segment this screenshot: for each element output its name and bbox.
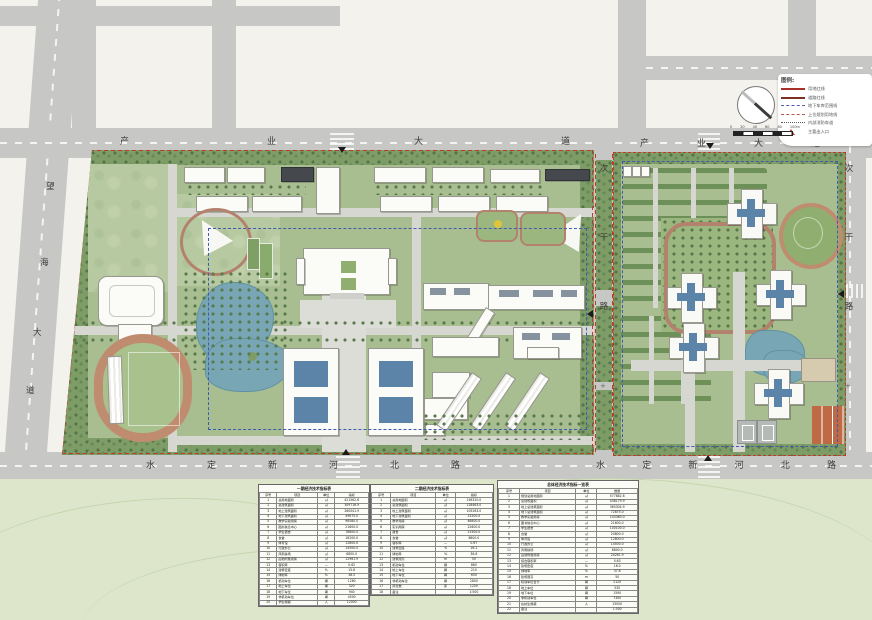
scale-bar-labels: 020406080100m bbox=[730, 125, 800, 129]
road-label-char: 北 bbox=[781, 458, 790, 471]
road-label-char: 道 bbox=[26, 384, 35, 396]
building bbox=[490, 169, 540, 183]
road-label-char: 水 bbox=[146, 458, 155, 471]
map-shape bbox=[341, 261, 356, 273]
map-shape bbox=[793, 217, 823, 249]
table-cell: 备注 bbox=[520, 607, 576, 612]
road-label-char: 路 bbox=[600, 300, 609, 312]
road-label-char: 海 bbox=[40, 256, 49, 268]
table-cell: 12000 bbox=[335, 600, 369, 605]
sports-court bbox=[757, 420, 777, 444]
map-shape bbox=[774, 379, 782, 407]
legend-label: 道路红线 bbox=[808, 95, 825, 101]
compass-needle bbox=[741, 91, 772, 120]
basketball-courts bbox=[812, 406, 844, 444]
road-label-char: 产 bbox=[640, 136, 649, 149]
road-label-char: 大 bbox=[754, 136, 763, 149]
cross-building bbox=[754, 369, 802, 417]
legend-item: 用地红线 bbox=[781, 85, 869, 94]
main-building bbox=[303, 248, 390, 295]
city-road-vertical-4 bbox=[788, 0, 816, 56]
map-shape bbox=[522, 333, 540, 340]
map-shape: 序号项目单位数量1规划总用地面积㎡577882.62总建筑面积㎡438179.9… bbox=[498, 488, 638, 613]
road-label-char: 80 bbox=[777, 125, 781, 129]
road-label-char: 水 bbox=[596, 458, 605, 471]
map-shape: 序号项目单位数量1规划总用地面积㎡577882.62总建筑面积㎡438179.9… bbox=[499, 489, 638, 613]
map-shape bbox=[62, 453, 594, 454]
map-shape bbox=[613, 152, 846, 164]
table-cell: 1:500 bbox=[597, 607, 638, 612]
map-shape bbox=[781, 88, 805, 90]
map-shape bbox=[552, 333, 570, 340]
main-entrance-marker bbox=[342, 449, 350, 455]
map-shape bbox=[499, 290, 519, 297]
map-shape bbox=[781, 114, 805, 115]
road-label-char: 产 bbox=[120, 134, 129, 147]
table-cell: 18 bbox=[372, 590, 391, 595]
map-shape: 序号项目单位指标1总用地面积㎡421562.62总建筑面积㎡309716.93地… bbox=[259, 492, 369, 606]
road-label-char: 0 bbox=[730, 125, 732, 129]
road-label-char: 河 bbox=[329, 458, 338, 471]
shed bbox=[623, 166, 632, 177]
map-shape bbox=[687, 283, 695, 311]
city-road-vertical-2 bbox=[212, 0, 236, 128]
indicator-table-total: 总体经济技术指标一览表序号项目单位数量1规划总用地面积㎡577882.62总建筑… bbox=[497, 480, 639, 614]
legend-label: 上位规划用地线 bbox=[808, 112, 837, 118]
building bbox=[227, 167, 265, 183]
road-label-middle-secondary: 次干路 bbox=[597, 162, 611, 312]
road-label-char: 新 bbox=[268, 458, 277, 471]
map-shape bbox=[379, 361, 413, 387]
road-label-east-secondary: 次干路 bbox=[842, 162, 856, 312]
map-shape bbox=[613, 152, 621, 456]
stadium bbox=[94, 334, 192, 442]
road-label-char: 路 bbox=[827, 458, 836, 471]
side-entrance-marker bbox=[838, 290, 844, 298]
cross-building bbox=[669, 323, 717, 371]
map-shape bbox=[747, 199, 755, 227]
table-cell: 人 bbox=[318, 600, 335, 605]
shed bbox=[641, 166, 650, 177]
road-label-char: 60 bbox=[765, 125, 769, 129]
road-label-char: 20 bbox=[740, 125, 744, 129]
building bbox=[380, 196, 432, 212]
table-cell: 学生规模 bbox=[277, 600, 318, 605]
legend-sample-solid bbox=[781, 94, 805, 102]
table-cell: 1:500 bbox=[455, 590, 492, 595]
cross-building bbox=[667, 273, 715, 321]
map-shape bbox=[186, 183, 306, 195]
map-shape bbox=[88, 164, 168, 292]
road-label-char: 大 bbox=[414, 134, 423, 147]
service-building bbox=[801, 358, 836, 382]
map-shape bbox=[430, 288, 446, 295]
lab-building bbox=[488, 285, 585, 310]
map-shape bbox=[776, 280, 784, 308]
indicator-table-phase1: 一期经济技术指标表序号项目单位指标1总用地面积㎡421562.62总建筑面积㎡3… bbox=[258, 484, 370, 607]
map-shape bbox=[182, 270, 292, 370]
road-label-char: 道 bbox=[561, 134, 570, 147]
road-label-shuiding-west: 水定新河北路 bbox=[146, 458, 460, 471]
dormitory-court-building bbox=[283, 348, 339, 436]
road-label-char: 大 bbox=[33, 326, 42, 338]
table-title: 一期经济技术指标表 bbox=[259, 485, 369, 492]
road-label-char: 业 bbox=[697, 136, 706, 149]
road-label-char: 望 bbox=[46, 180, 55, 192]
lab-building bbox=[423, 283, 489, 310]
survey-cross: + bbox=[600, 382, 606, 390]
garden bbox=[520, 212, 566, 246]
map-shape bbox=[294, 397, 328, 423]
dormitory-court-building bbox=[368, 348, 424, 436]
map-shape bbox=[561, 290, 577, 297]
building bbox=[184, 167, 225, 183]
campus-master-plan-map: 产业大道 产业大道 水定新河北路 水定新河北路 望海大道 次干路 + 次干路 +… bbox=[0, 0, 872, 620]
building-dark-roof bbox=[281, 167, 314, 182]
building-dark-roof bbox=[545, 169, 590, 181]
north-compass bbox=[737, 86, 775, 124]
sculpture-dot bbox=[494, 220, 502, 228]
legend-sample-dashed bbox=[781, 102, 805, 110]
building-wing bbox=[388, 258, 397, 285]
map-shape bbox=[596, 390, 612, 450]
legend-title: 图例: bbox=[781, 76, 869, 84]
map-shape bbox=[613, 444, 846, 456]
map-shape: 序号项目单位指标1总用地面积㎡421562.62总建筑面积㎡309716.93地… bbox=[260, 493, 369, 606]
road-label-wanghai: 望海大道 bbox=[0, 150, 70, 430]
map-shape: 序号项目单位指标1总用地面积㎡156320.02总建筑面积㎡128463.03地… bbox=[372, 493, 493, 595]
shed bbox=[632, 166, 641, 177]
road-label-char: 定 bbox=[642, 458, 651, 471]
road-label-char: 新 bbox=[688, 458, 697, 471]
survey-cross: + bbox=[845, 382, 851, 390]
road-label-char: 路 bbox=[451, 458, 460, 471]
main-entrance-marker bbox=[704, 455, 712, 461]
legend-item: 上位规划用地线 bbox=[781, 111, 869, 120]
map-shape: 序号项目单位指标1总用地面积㎡156320.02总建筑面积㎡128463.03地… bbox=[371, 492, 493, 595]
table-title: 二期经济技术指标表 bbox=[371, 485, 493, 492]
road-label-char: 路 bbox=[845, 300, 854, 312]
main-entrance-marker bbox=[706, 143, 714, 149]
map-shape bbox=[533, 290, 553, 297]
map-shape bbox=[341, 278, 356, 290]
building bbox=[316, 167, 340, 214]
table-row: 20学生规模人12000 bbox=[260, 600, 369, 605]
table-row: 22备注1:500 bbox=[499, 607, 638, 612]
road-label-char: 业 bbox=[267, 134, 276, 147]
building bbox=[374, 167, 426, 183]
map-shape bbox=[653, 168, 658, 308]
legend-label: 主要出入口 bbox=[808, 129, 829, 135]
map-shape bbox=[592, 150, 593, 455]
main-entrance-marker bbox=[338, 147, 346, 153]
main-campus-parcel bbox=[62, 150, 594, 455]
gymnasium bbox=[98, 276, 164, 326]
map-shape bbox=[109, 285, 155, 317]
map-shape bbox=[781, 122, 805, 123]
map-shape bbox=[379, 397, 413, 423]
map-shape bbox=[374, 183, 546, 195]
legend-label: 用地红线 bbox=[808, 86, 825, 92]
building bbox=[252, 196, 302, 212]
road-label-shuiding-east: 水定新河北路 bbox=[596, 458, 836, 471]
building bbox=[432, 167, 484, 183]
cross-building bbox=[727, 189, 775, 237]
road-label-char: 次 bbox=[600, 162, 609, 174]
sports-court bbox=[737, 420, 757, 444]
east-campus-parcel bbox=[613, 152, 846, 456]
road-label-char: 定 bbox=[207, 458, 216, 471]
map-shape bbox=[330, 293, 364, 299]
road-label-char: 干 bbox=[845, 231, 854, 243]
table-title: 总体经济技术指标一览表 bbox=[498, 481, 638, 488]
map-shape bbox=[596, 306, 612, 382]
table-cell: 22 bbox=[499, 607, 520, 612]
running-track bbox=[779, 203, 843, 269]
map-shape bbox=[781, 105, 805, 106]
legend-sample-solid bbox=[781, 85, 805, 93]
road-label-char: 干 bbox=[600, 231, 609, 243]
map-shape bbox=[742, 425, 754, 441]
table-row: 18备注1:500 bbox=[372, 590, 493, 595]
legend-sample-dashed bbox=[781, 111, 805, 119]
table-cell bbox=[576, 607, 597, 612]
road-label-char: 40 bbox=[753, 125, 757, 129]
building bbox=[527, 347, 559, 359]
legend-label: 内部消防车道 bbox=[808, 120, 833, 126]
map-shape bbox=[689, 333, 697, 361]
building-wing bbox=[296, 258, 305, 285]
legend-label: 地下车库范围线 bbox=[808, 103, 837, 109]
indicator-table-phase2: 二期经济技术指标表序号项目单位指标1总用地面积㎡156320.02总建筑面积㎡1… bbox=[370, 484, 494, 596]
table-cell bbox=[436, 590, 455, 595]
map-shape bbox=[762, 425, 774, 441]
road-label-char: 河 bbox=[735, 458, 744, 471]
lab-building bbox=[432, 337, 499, 357]
table-cell: 20 bbox=[260, 600, 277, 605]
map-shape bbox=[781, 97, 805, 99]
map-shape bbox=[595, 154, 596, 454]
road-label-char: 北 bbox=[390, 458, 399, 471]
legend-item: 道路红线 bbox=[781, 94, 869, 103]
legend-item: 地下车库范围线 bbox=[781, 102, 869, 111]
scale-bar bbox=[733, 131, 793, 136]
stadium-stand bbox=[107, 356, 124, 424]
map-shape bbox=[422, 412, 582, 440]
map-shape bbox=[646, 67, 872, 69]
map-shape bbox=[128, 352, 180, 426]
cross-building bbox=[756, 270, 804, 318]
road-label-char: 次 bbox=[845, 162, 854, 174]
road-label-char: 100m bbox=[790, 125, 800, 129]
map-shape bbox=[294, 361, 328, 387]
road-label-industry-avenue-west: 产业大道 bbox=[120, 134, 570, 147]
table-cell: 备注 bbox=[391, 590, 436, 595]
side-entrance-marker bbox=[587, 310, 593, 318]
map-shape bbox=[454, 288, 470, 295]
